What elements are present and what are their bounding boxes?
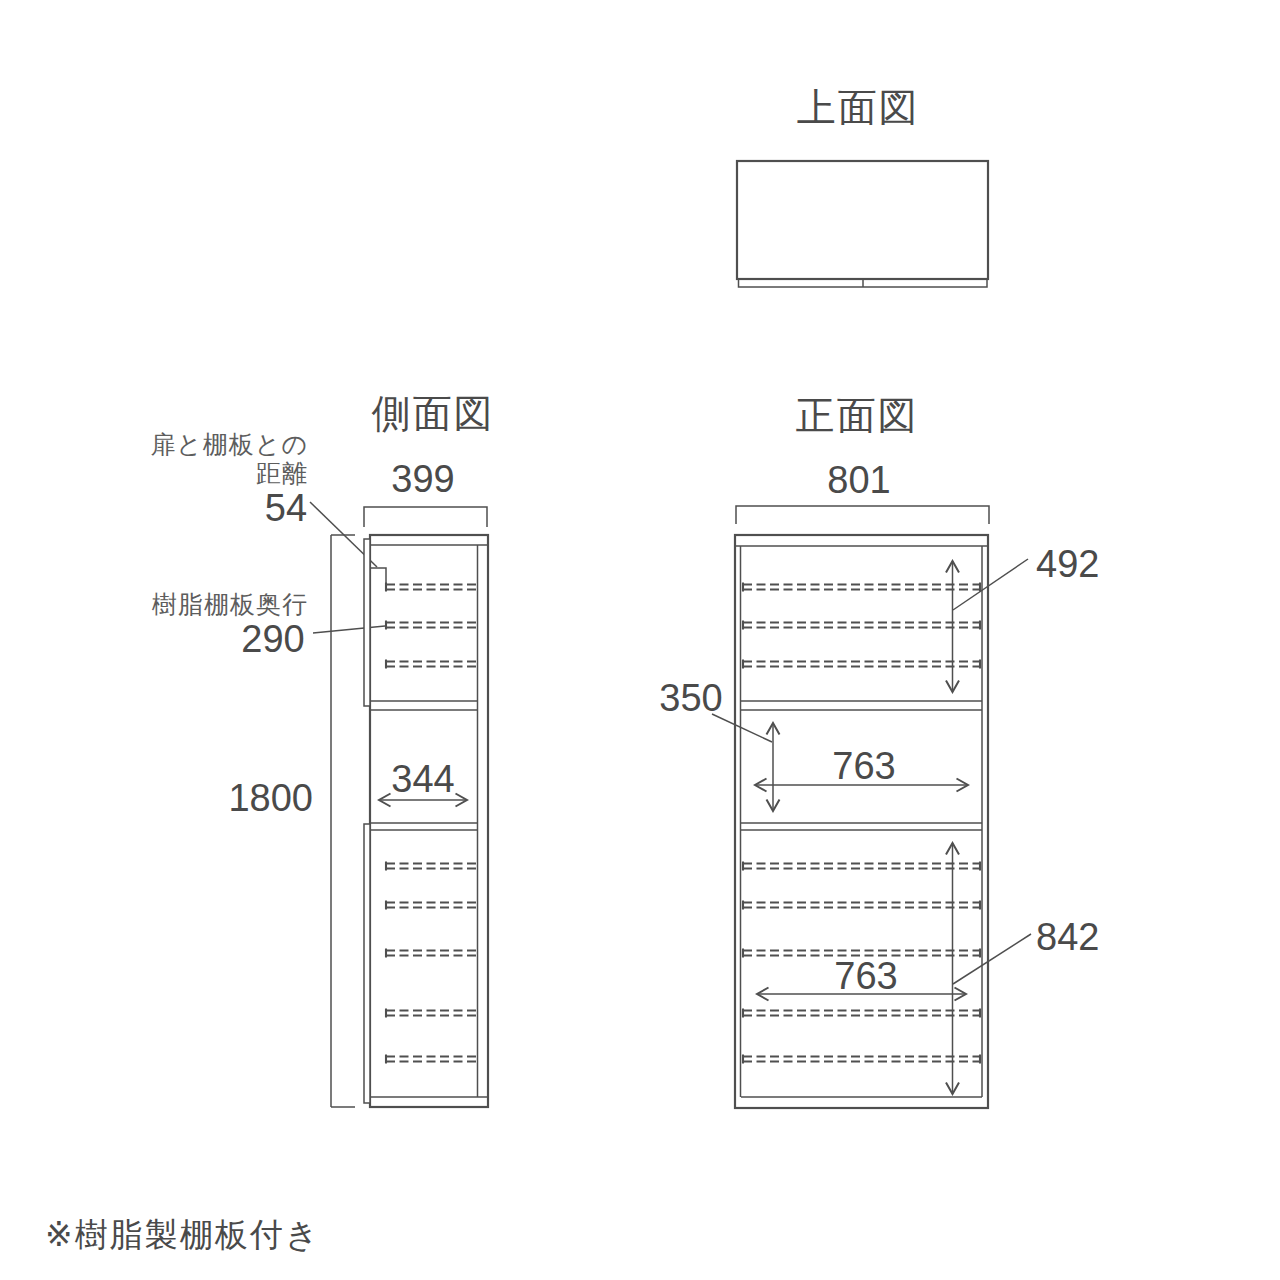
furniture-dimension-diagram: 上面図 側面図 399 1800 扉と棚板との 距離 54 樹脂棚板奥行 290 xyxy=(0,0,1280,1280)
shelf-depth-label: 樹脂棚板奥行 xyxy=(151,590,308,618)
front-bottom-section-leader xyxy=(953,934,1031,984)
front-view-title: 正面図 xyxy=(796,394,919,437)
side-top-door-edge xyxy=(364,539,370,706)
door-gap-value: 54 xyxy=(265,487,307,529)
diagram-canvas: 上面図 側面図 399 1800 扉と棚板との 距離 54 樹脂棚板奥行 290 xyxy=(0,0,1280,1280)
shelf-depth-leader-line xyxy=(313,626,385,633)
front-middle-width-value: 763 xyxy=(832,745,895,787)
top-view-title: 上面図 xyxy=(797,86,920,129)
front-middle-section-value: 350 xyxy=(659,677,722,719)
door-gap-label-line1: 扉と棚板との xyxy=(150,430,308,458)
front-view: 正面図 801 xyxy=(659,394,1099,1108)
side-height-dim-value: 1800 xyxy=(228,777,313,819)
resin-shelf-note: ※樹脂製棚板付き xyxy=(45,1216,320,1253)
side-view: 側面図 399 1800 扉と棚板との 距離 54 樹脂棚板奥行 290 xyxy=(150,392,494,1107)
front-view-cabinet xyxy=(735,535,988,1108)
door-gap-label-line2: 距離 xyxy=(256,459,308,487)
side-width-dim-value: 399 xyxy=(391,458,454,500)
side-view-title: 側面図 xyxy=(372,392,495,435)
front-bottom-section-value: 842 xyxy=(1036,916,1099,958)
side-bottom-door-edge xyxy=(364,824,370,1103)
top-view-outline xyxy=(737,161,988,287)
top-view: 上面図 xyxy=(737,86,988,287)
side-view-cabinet xyxy=(364,535,488,1107)
front-middle-section-leader xyxy=(712,714,772,742)
front-width-dim-bracket xyxy=(736,506,989,524)
front-top-section-value: 492 xyxy=(1036,543,1099,585)
side-height-dim-line xyxy=(331,535,355,1107)
side-width-dim-bracket xyxy=(364,507,487,527)
front-bottom-width-value: 763 xyxy=(834,955,897,997)
side-open-depth-value: 344 xyxy=(391,758,454,800)
shelf-depth-value: 290 xyxy=(241,618,304,660)
front-width-dim-value: 801 xyxy=(827,459,890,501)
